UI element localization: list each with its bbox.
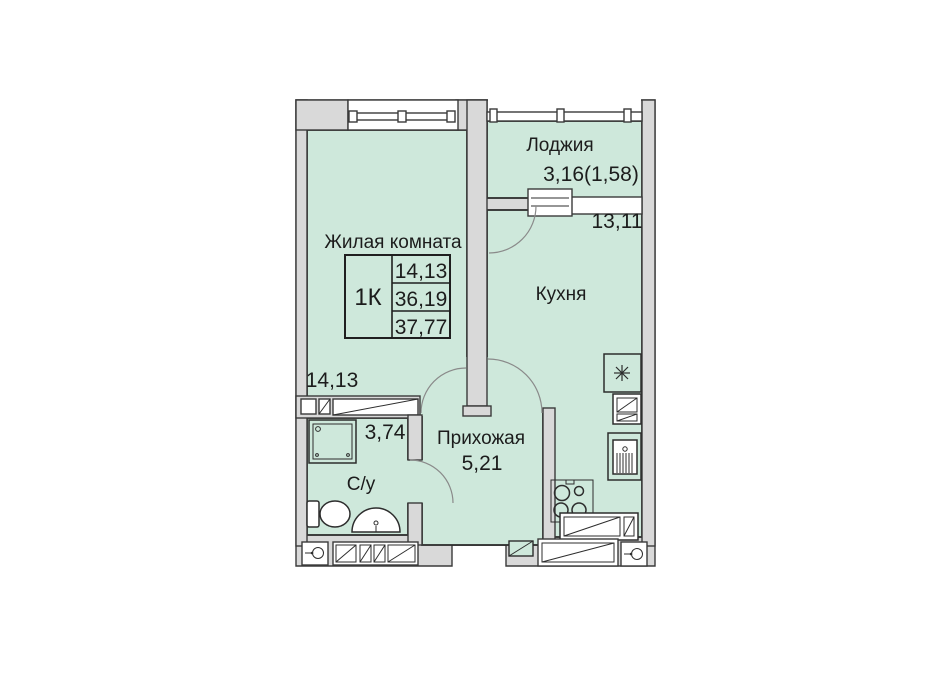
closet-box-small xyxy=(301,399,316,414)
living-area-label: 14,13 xyxy=(306,369,359,392)
fridge-star-icon xyxy=(614,365,630,381)
living-label: Жилая комната xyxy=(324,232,462,253)
living-window-mullion-2 xyxy=(398,111,406,122)
kitchen-area-label: 13,11 xyxy=(592,210,643,233)
wall-top-left xyxy=(296,100,348,130)
wall-bathroom-lower xyxy=(408,503,422,545)
loggia-area-label: 3,16(1,58) xyxy=(543,163,639,186)
wall-right xyxy=(642,100,655,546)
wall-central-stub-foot xyxy=(463,406,491,416)
bathroom-label: С/у xyxy=(347,474,376,495)
living-window-mullion-1 xyxy=(349,111,357,122)
bathroom-area-label: 3,74 xyxy=(365,421,406,444)
loggia-mullion-3 xyxy=(624,109,631,122)
floor-plan: 1К 14,13 36,19 37,77 Лоджия 3,16(1,58) 1… xyxy=(0,0,950,671)
kitchen-label: Кухня xyxy=(536,284,587,305)
doorway-living-hall xyxy=(420,357,468,399)
doorway-bathroom-hall xyxy=(406,460,423,503)
doorway-kitchen-hall xyxy=(486,357,546,412)
wall-hall-kitchen xyxy=(543,408,555,545)
room-loggia xyxy=(487,121,642,198)
hallway-label: Прихожая xyxy=(437,428,525,449)
floor-plan-page: 1К 14,13 36,19 37,77 Лоджия 3,16(1,58) 1… xyxy=(0,0,950,671)
hallway-area-label: 5,21 xyxy=(462,452,503,475)
wall-left xyxy=(296,100,307,546)
stat-area-no-loggia: 36,19 xyxy=(395,288,448,311)
loggia-label: Лоджия xyxy=(526,135,593,156)
wall-bathroom-upper xyxy=(408,415,422,460)
toilet-bowl-icon xyxy=(320,501,350,527)
stat-total-area: 37,77 xyxy=(395,316,448,339)
wall-central xyxy=(467,100,487,406)
stat-living-area: 14,13 xyxy=(395,260,448,283)
balcony-window-unit xyxy=(528,189,572,216)
apartment-type: 1К xyxy=(354,284,381,311)
loggia-mullion-2 xyxy=(557,109,564,122)
living-window-mullion-3 xyxy=(447,111,455,122)
loggia-mullion-1 xyxy=(490,109,497,122)
riser-dot-left xyxy=(311,552,314,555)
riser-dot-right xyxy=(630,553,633,556)
toilet-tank-icon xyxy=(307,501,319,527)
